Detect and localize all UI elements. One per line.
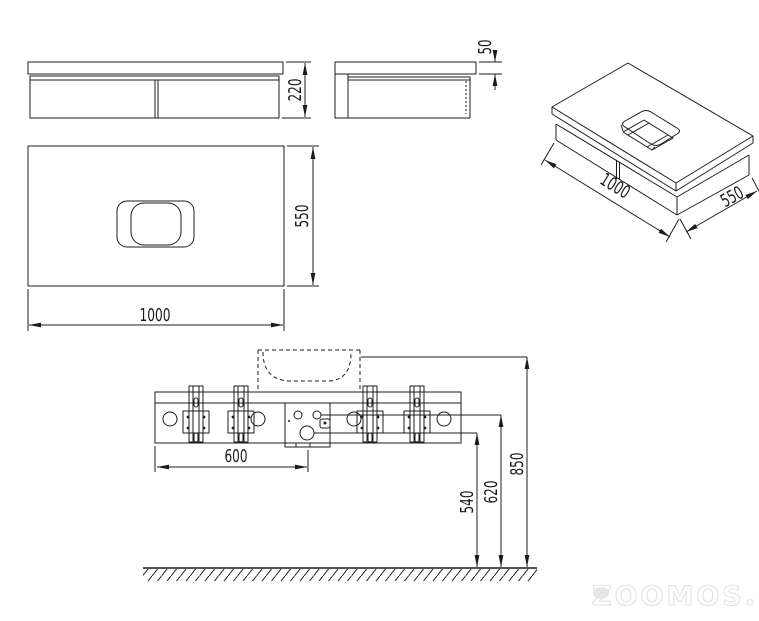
drain-height-dimension: 540 — [457, 433, 478, 567]
front-countertop — [28, 62, 283, 74]
plan-view: 550 1000 — [28, 146, 319, 331]
mounting-bracket-2 — [228, 386, 254, 442]
front-view: 220 — [28, 62, 311, 118]
mounting-bracket-4 — [404, 386, 430, 442]
iso-depth-dimension: 550 — [680, 178, 759, 239]
wall-hole-2 — [251, 412, 265, 426]
side-cabinet-body — [348, 77, 470, 118]
mounting-bracket-1 — [183, 386, 209, 442]
total-height-dimension: 850 — [507, 357, 528, 567]
wall-hole-1 — [163, 412, 177, 426]
bracket-span-dimension: 600 — [155, 446, 308, 472]
vanity-technical-drawing: 220 50 550 1000 — [0, 0, 759, 621]
dim-plan-depth-text: 550 — [292, 205, 313, 228]
dim-iso-width-text: 1000 — [596, 169, 633, 203]
installation-view: 600 540 620 850 — [143, 350, 537, 581]
iso-countertop-top-face — [552, 63, 753, 183]
plan-depth-dimension: 550 — [287, 146, 319, 286]
dim-install-total-text: 850 — [507, 453, 528, 476]
dim-install-span-text: 600 — [225, 446, 248, 467]
drain-outlet — [300, 426, 314, 440]
front-height-dimension: 220 — [282, 62, 311, 118]
sink-basin-inner — [131, 203, 181, 245]
dim-iso-depth-text: 550 — [717, 182, 747, 212]
iso-width-dimension: 1000 — [541, 143, 679, 242]
wall-hole-4 — [437, 412, 451, 426]
basin-dashed-outline — [258, 350, 360, 392]
watermark-text: ZOOMOS.OY — [592, 581, 759, 612]
plan-countertop-outline — [28, 146, 284, 286]
watermark: ZOOMOS.OY — [592, 581, 759, 612]
dim-install-supply-text: 620 — [481, 481, 502, 504]
side-view: 50 — [335, 40, 502, 119]
iso-cabinet-body — [556, 124, 749, 215]
side-countertop — [335, 62, 476, 74]
dim-side-countertop-text: 50 — [475, 40, 496, 55]
side-wall-rail — [335, 74, 348, 118]
dim-plan-width-text: 1000 — [140, 305, 171, 326]
water-supply-left — [294, 411, 302, 419]
mounting-bracket-3 — [357, 386, 383, 442]
isometric-view: 1000 550 — [541, 63, 759, 242]
dim-install-drain-text: 540 — [457, 491, 478, 514]
technical-drawing-page: 220 50 550 1000 — [0, 0, 759, 621]
side-countertop-dimension: 50 — [475, 40, 502, 91]
dim-front-height-text: 220 — [285, 79, 306, 102]
sink-cutout — [117, 201, 194, 247]
supply-height-dimension: 620 — [481, 415, 502, 567]
plumbing-box — [285, 403, 330, 447]
floor-hatch — [143, 569, 537, 581]
water-supply-right — [313, 411, 321, 419]
plan-width-dimension: 1000 — [28, 289, 284, 331]
wall-hole-3 — [347, 412, 361, 426]
iso-sink-recess — [621, 111, 680, 151]
